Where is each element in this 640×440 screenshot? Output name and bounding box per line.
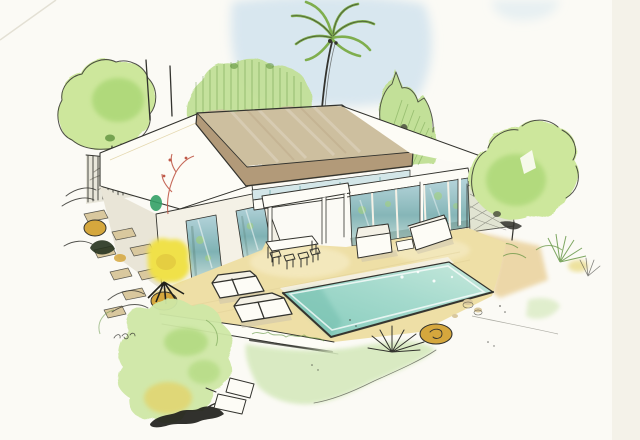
red-dab-3 — [163, 175, 166, 178]
deck-light-patch-1 — [250, 246, 350, 278]
column-3 — [344, 193, 347, 237]
red-dab-1 — [169, 159, 172, 162]
column-2 — [322, 197, 326, 244]
dot — [355, 325, 357, 327]
palm-coconut-1 — [328, 39, 332, 43]
dot — [311, 364, 313, 366]
paper-edge-shade — [612, 0, 640, 440]
right-tree-dark-dab — [493, 211, 501, 217]
dot — [349, 319, 351, 321]
pool-sparkle-3 — [433, 280, 436, 283]
column-5 — [458, 178, 461, 226]
dot — [317, 369, 318, 370]
yellow-plant-core — [156, 254, 176, 270]
hedge-dab-2 — [266, 63, 274, 69]
palm-coconut-2 — [334, 41, 337, 44]
tree-foliage-mid — [92, 78, 144, 122]
red-dab-2 — [185, 157, 188, 160]
bush-yellow-patch — [144, 382, 192, 414]
pool-sparkle-2 — [417, 271, 420, 274]
dot — [499, 305, 501, 307]
dot — [493, 345, 494, 346]
hedge-dab-1 — [230, 63, 238, 69]
tree-dark-dab — [105, 135, 115, 142]
dot — [504, 311, 506, 313]
glass-wall-leaf-3 — [434, 192, 442, 200]
bush-green-patch-1 — [164, 328, 208, 356]
pool-sparkle-4 — [451, 276, 453, 278]
glass-wall-leaf-2 — [385, 201, 391, 207]
boulder-3 — [114, 254, 126, 262]
dot — [487, 341, 489, 343]
pebble-3 — [452, 314, 458, 318]
illustration-canvas — [0, 0, 640, 440]
villa-sketch — [0, 0, 640, 440]
green-accent-plant — [150, 195, 162, 211]
pool-sparkle-1 — [400, 275, 403, 278]
bush-green-patch-2 — [188, 360, 220, 384]
right-tree-mid — [486, 154, 546, 206]
